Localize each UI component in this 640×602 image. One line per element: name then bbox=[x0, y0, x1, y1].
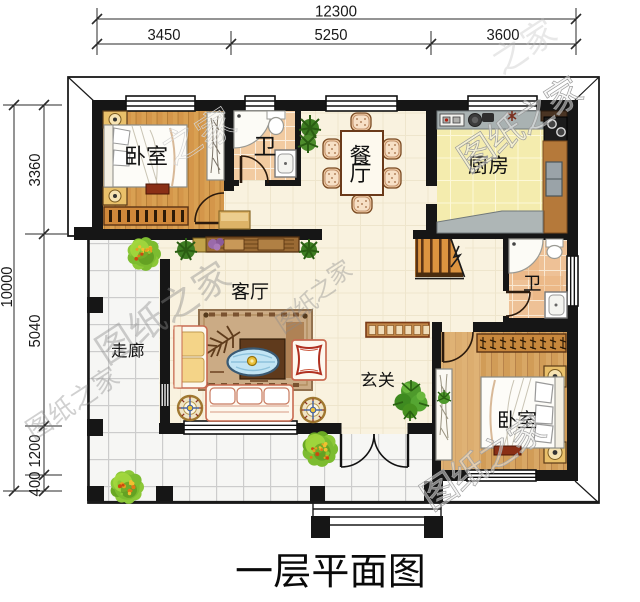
svg-text:12300: 12300 bbox=[315, 4, 357, 21]
svg-text:3600: 3600 bbox=[487, 27, 520, 44]
svg-text:10000: 10000 bbox=[0, 266, 16, 307]
svg-text:3360: 3360 bbox=[27, 153, 44, 186]
svg-text:400: 400 bbox=[27, 471, 44, 496]
svg-text:5250: 5250 bbox=[315, 27, 348, 44]
svg-text:3450: 3450 bbox=[148, 27, 181, 44]
svg-text:5040: 5040 bbox=[27, 314, 44, 347]
